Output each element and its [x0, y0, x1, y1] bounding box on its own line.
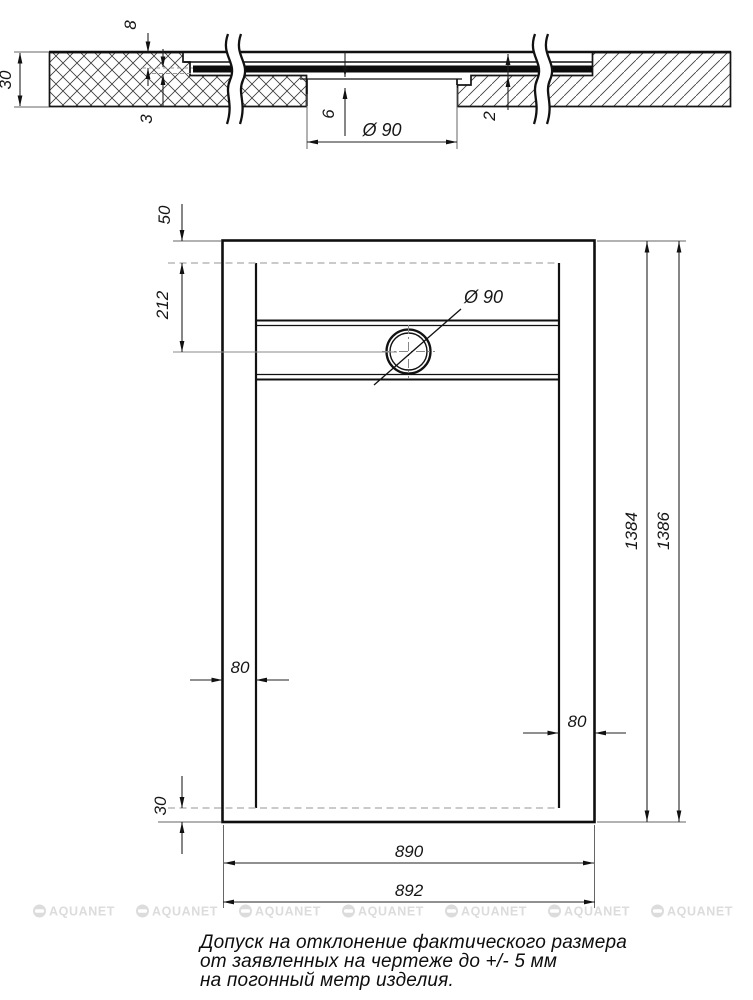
dim-plan-outer-width: 892: [223, 881, 595, 904]
dim-label-plan-drain: Ø 90: [463, 287, 503, 307]
aquanet-watermark-label: AQUANET: [667, 905, 733, 919]
dim-label-plan-212: 212: [153, 290, 172, 320]
aquanet-watermark: AQUANET: [136, 905, 218, 919]
aquanet-watermark: AQUANET: [342, 905, 424, 919]
plan-drain-circle: Ø 90: [374, 287, 503, 385]
dim-plan-inner-length: 1384: [622, 241, 649, 822]
section-right-body: [458, 53, 731, 107]
dim-label-section-2: 2: [480, 111, 499, 122]
watermark-row: AQUANETAQUANETAQUANETAQUANETAQUANETAQUAN…: [33, 905, 733, 919]
aquanet-logo-bar: [35, 909, 44, 913]
dim-plan-right-margin: 80: [523, 712, 626, 735]
cross-section-view: 30 8 3 6: [0, 20, 731, 149]
dim-section-total-thickness: 30: [0, 52, 49, 107]
aquanet-watermark: AQUANET: [445, 905, 527, 919]
dim-plan-drain-center-offset: 212: [153, 263, 184, 352]
dim-plan-left-margin: 80: [190, 658, 289, 682]
dim-label-plan-30: 30: [151, 796, 170, 815]
dim-label-plan-1386: 1386: [654, 512, 673, 550]
aquanet-watermark-label: AQUANET: [358, 905, 424, 919]
dim-label-section-8: 8: [121, 20, 140, 30]
dim-label-plan-80-left: 80: [231, 658, 250, 677]
tolerance-note-line1: Допуск на отклонение фактического размер…: [198, 932, 627, 953]
aquanet-logo-bar: [653, 909, 662, 913]
dim-plan-bottom-offset: 30: [151, 776, 184, 854]
dim-plan-outer-length: 1386: [654, 241, 681, 822]
dim-section-recess-height: 6: [319, 52, 347, 136]
aquanet-watermark-label: AQUANET: [461, 905, 527, 919]
aquanet-watermark: AQUANET: [651, 905, 733, 919]
aquanet-logo-bar: [138, 909, 147, 913]
technical-drawing-shower-tray: 30 8 3 6: [0, 0, 753, 1000]
dim-label-section-6: 6: [319, 109, 338, 119]
aquanet-logo-bar: [447, 909, 456, 913]
aquanet-watermark-label: AQUANET: [152, 905, 218, 919]
aquanet-logo-bar: [344, 909, 353, 913]
dim-plan-inner-width: 890: [224, 842, 594, 865]
aquanet-logo-bar: [241, 909, 250, 913]
aquanet-watermark: AQUANET: [548, 905, 630, 919]
dim-label-plan-80-right: 80: [568, 712, 587, 731]
aquanet-watermark-label: AQUANET: [49, 905, 115, 919]
section-left-body: [50, 53, 307, 107]
aquanet-watermark: AQUANET: [33, 905, 115, 919]
dim-label-plan-890: 890: [395, 842, 424, 861]
tolerance-note: Допуск на отклонение фактического размер…: [198, 932, 627, 991]
dim-label-section-3: 3: [137, 114, 156, 124]
dim-label-section-drain: Ø 90: [361, 120, 401, 140]
drawing-sheet: 30 8 3 6: [0, 0, 753, 1000]
aquanet-logo-bar: [550, 909, 559, 913]
aquanet-watermark-label: AQUANET: [564, 905, 630, 919]
aquanet-watermark-label: AQUANET: [255, 905, 321, 919]
tolerance-note-line3: на погонный метр изделия.: [200, 970, 454, 991]
aquanet-watermark: AQUANET: [239, 905, 321, 919]
section-steel-sheet: [193, 66, 592, 73]
plan-view: Ø 90 50 212 30: [151, 204, 686, 908]
dim-label-section-30: 30: [0, 70, 15, 89]
dim-label-plan-50: 50: [155, 205, 174, 224]
tolerance-note-line2: от заявленных на чертеже до +/- 5 мм: [200, 951, 557, 972]
dim-label-plan-1384: 1384: [622, 512, 641, 550]
dim-label-plan-892: 892: [395, 881, 424, 900]
dim-plan-top-offset: 50: [155, 204, 184, 241]
